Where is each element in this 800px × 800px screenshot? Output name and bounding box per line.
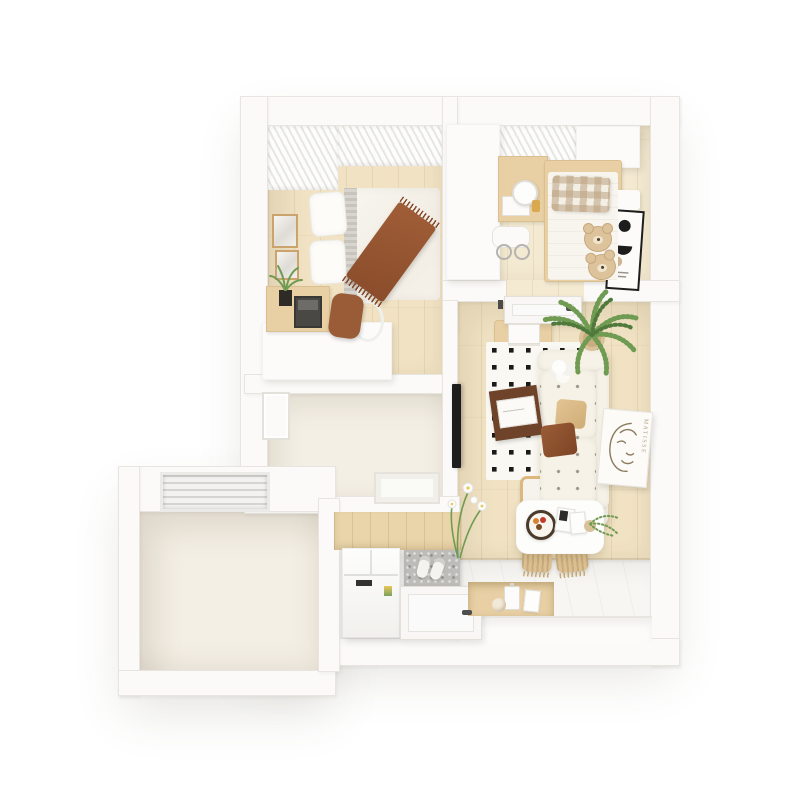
matisse-poster: MATISSE	[597, 408, 653, 488]
window-curtain	[268, 124, 338, 190]
chair-leg	[514, 244, 530, 260]
apartment-floorplan: MATISSE	[0, 0, 800, 800]
bed-pillow	[309, 239, 347, 285]
wall-top	[240, 96, 680, 126]
counter-face	[455, 616, 652, 642]
table-plant	[578, 496, 622, 550]
card-print	[559, 510, 568, 521]
teddy-snout	[593, 236, 603, 244]
wall-annex-bottom	[118, 670, 336, 696]
fruit	[540, 517, 546, 523]
picture-frame	[272, 214, 298, 248]
entry-wood-wall	[334, 512, 462, 550]
teddy-ear	[583, 223, 594, 234]
washer-seam	[344, 574, 398, 576]
door-hinge	[498, 300, 503, 309]
wall-right	[650, 96, 680, 666]
shower-tray	[374, 472, 440, 504]
wall-bottom	[320, 638, 680, 666]
palm-plant	[534, 280, 644, 380]
matisse-line-face	[602, 415, 641, 480]
brown-pillow	[540, 422, 578, 458]
soap-dispenser	[504, 586, 520, 610]
gingham-pillow	[551, 175, 610, 213]
vent-grille	[160, 472, 270, 512]
fruit-bowl	[526, 510, 556, 540]
round-jar	[492, 598, 506, 612]
desk-chair	[327, 292, 365, 340]
teddy-bear-cushion	[584, 226, 612, 252]
teddy-snout	[597, 263, 608, 273]
wall-left	[240, 96, 268, 510]
window-blinds	[338, 124, 442, 166]
bed-pillow	[308, 191, 348, 238]
flower-arrangement	[444, 462, 494, 562]
teddy-ear	[602, 223, 613, 234]
magazine	[496, 395, 538, 428]
desk-bottle	[532, 200, 540, 212]
front-door-handle	[462, 610, 472, 615]
kids-wardrobe	[446, 124, 500, 280]
bathroom-window	[262, 392, 290, 440]
washer-display	[356, 580, 372, 586]
washer-seam	[370, 550, 372, 574]
tv	[452, 384, 461, 468]
wall-annex-left	[118, 466, 140, 696]
potted-plant	[268, 262, 304, 308]
counter-card	[523, 589, 541, 613]
storage-room-floor	[140, 512, 320, 672]
chair-leg	[496, 244, 512, 260]
fruit	[536, 524, 542, 530]
energy-label	[384, 586, 392, 596]
